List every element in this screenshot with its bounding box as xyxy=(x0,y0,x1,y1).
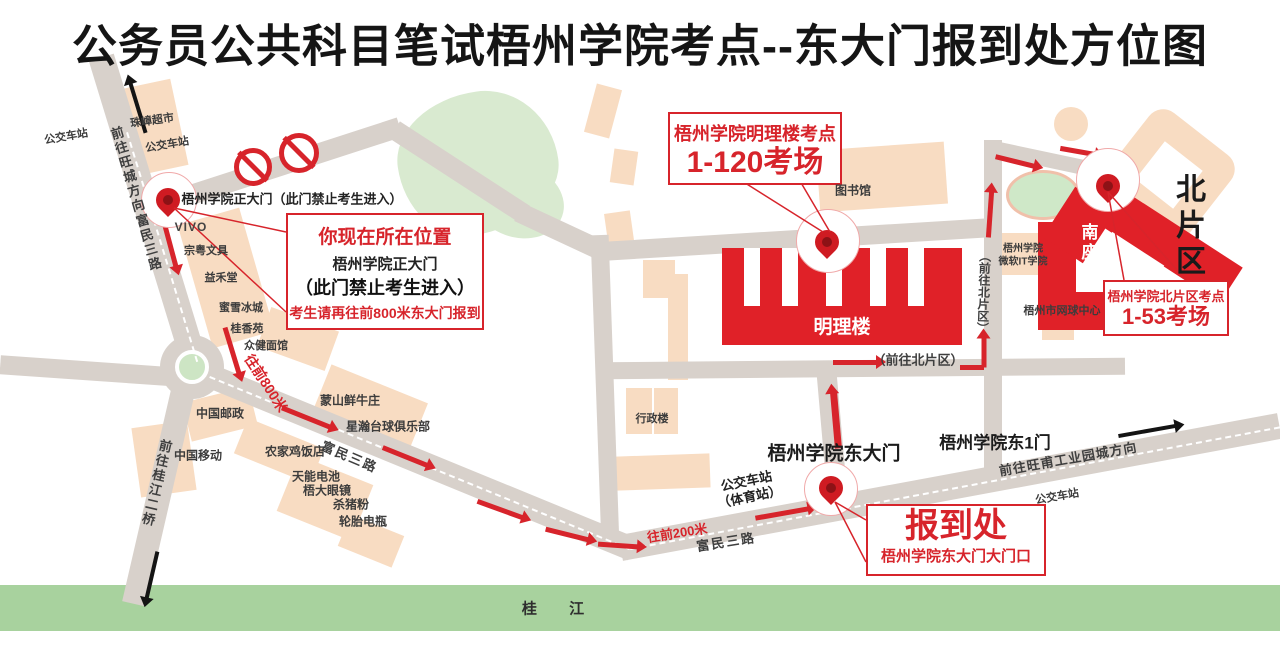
building-small-1 xyxy=(584,83,622,138)
minglilou-slot xyxy=(744,248,760,306)
callout-current-location: 你现在所在位置 梧州学院正大门 （此门禁止考生进入） 考生请再往前800米东大门… xyxy=(286,213,484,330)
north-area-label: 北片区 xyxy=(1165,173,1209,281)
route-arrow xyxy=(982,338,987,368)
callout-line: 梧州学院北片区考点 xyxy=(1105,286,1227,305)
poi-bus-stop-nw1: 公交车站 xyxy=(43,124,89,147)
callout-line: 梧州学院东大门大门口 xyxy=(868,545,1044,566)
callout-line: 你现在所在位置 xyxy=(288,222,482,249)
minglilou-slot xyxy=(782,248,798,306)
callout-minglilou-site: 梧州学院明理楼考点 1-120考场 xyxy=(668,112,842,185)
nanzuo-label: 南座 xyxy=(1076,223,1101,263)
river-label: 桂 江 xyxy=(522,598,598,619)
east-gate-1-label: 梧州学院东1门 xyxy=(939,429,1050,454)
minglilou-slot xyxy=(908,248,924,306)
poi-china-post: 中国邮政 xyxy=(196,405,244,422)
no-entry-icon xyxy=(234,148,272,186)
poi-china-mobile: 中国移动 xyxy=(174,447,222,464)
callout-line: 1-120考场 xyxy=(670,146,840,179)
poi-bus-stop-gym: 公交车站 （体育站） xyxy=(713,467,783,511)
poi-stationery: 宗粤文具 xyxy=(184,242,228,258)
poi-farm-chicken: 农家鸡饭店 xyxy=(265,443,325,460)
road-campus-vertical-west xyxy=(591,235,620,545)
page-title: 公务员公共科目笔试梧州学院考点--东大门报到处方位图 xyxy=(72,10,1208,75)
callout-line: （此门禁止考生进入） xyxy=(288,274,482,300)
microsoft-it-line1: 梧州学院 xyxy=(999,244,1048,257)
building-low-south xyxy=(615,453,710,490)
callout-line: 考生请再往前800米东大门报到 xyxy=(288,303,482,323)
road-label-to-north-h: （前往北片区） xyxy=(872,350,963,369)
callout-line: 梧州学院明理楼考点 xyxy=(670,120,840,146)
route-arrow-stub xyxy=(960,365,984,370)
callout-line: 梧州学院正大门 xyxy=(288,253,482,274)
poi-bus-stop-se: 公交车站 xyxy=(1034,484,1080,507)
route-arrow xyxy=(833,360,877,365)
building-library-label: 图书馆 xyxy=(835,182,871,199)
callout-north-site: 梧州学院北片区考点 1-53考场 xyxy=(1103,280,1229,336)
microsoft-it-line2: 微软IT学院 xyxy=(999,256,1048,269)
road-label-to-north-v: （前往北片区） xyxy=(974,250,994,335)
callout-registration: 报到处 梧州学院东大门大门口 xyxy=(866,504,1046,576)
campus-map: 公务员公共科目笔试梧州学院考点--东大门报到处方位图 桂 江 xyxy=(0,0,1280,653)
poi-billiards-club: 星瀚台球俱乐部 xyxy=(346,418,430,435)
building-tennis-label: 梧州市网球中心 xyxy=(1024,302,1101,318)
building-microsoft-it-label: 梧州学院 微软IT学院 xyxy=(999,244,1048,269)
building-admin-label: 行政楼 xyxy=(636,410,669,426)
building-small-2 xyxy=(610,148,638,185)
callout-line: 1-53考场 xyxy=(1105,305,1227,329)
roundabout-center xyxy=(175,350,209,384)
east-gate-label: 梧州学院东大门 xyxy=(767,439,900,466)
callout-line: 报到处 xyxy=(868,508,1044,545)
main-gate-label: 梧州学院正大门（此门禁止考生进入） xyxy=(181,189,402,208)
poi-yihetang: 益禾堂 xyxy=(205,269,238,285)
poi-beef-house: 蒙山鲜牛庄 xyxy=(320,392,380,409)
no-entry-icon xyxy=(279,133,319,173)
poi-guixiangyuan: 桂香苑 xyxy=(231,320,264,336)
poi-noodle-house: 众健面馆 xyxy=(244,337,288,353)
poi-pork-noodle: 杀猪粉 xyxy=(333,496,369,513)
poi-mixue: 蜜雪冰城 xyxy=(219,299,263,315)
poi-tire-battery: 轮胎电瓶 xyxy=(339,513,387,530)
minglilou-slot xyxy=(870,248,886,306)
poi-vivo: VIVO xyxy=(175,220,208,234)
building-round-ne xyxy=(1054,107,1088,141)
minglilou-label: 明理楼 xyxy=(722,312,962,339)
river-band xyxy=(0,585,1280,631)
